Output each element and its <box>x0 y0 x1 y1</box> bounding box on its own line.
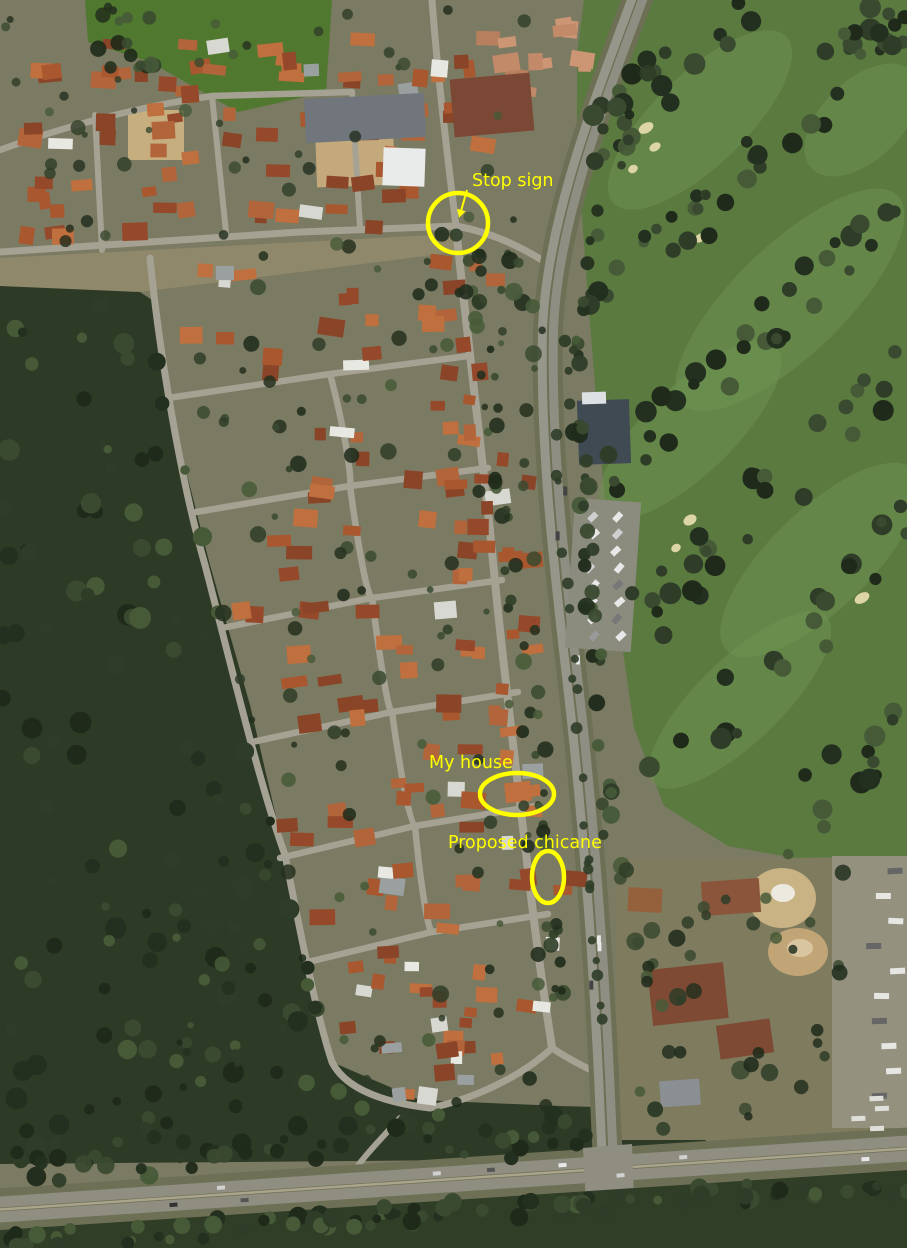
annotation-proposed-chicane: Proposed chicane <box>448 833 602 903</box>
my-house-ellipse <box>480 773 554 815</box>
stop-sign-label: Stop sign <box>472 171 554 191</box>
satellite-map: Stop sign My house Proposed chicane <box>0 0 907 1248</box>
my-house-label: My house <box>429 753 513 773</box>
annotation-stop-sign: Stop sign <box>428 171 554 253</box>
annotation-layer: Stop sign My house Proposed chicane <box>0 0 907 1248</box>
proposed-chicane-ellipse <box>532 851 564 903</box>
proposed-chicane-label: Proposed chicane <box>448 833 602 853</box>
annotation-my-house: My house <box>429 753 554 815</box>
stop-sign-arrowhead-icon <box>457 209 466 218</box>
stop-sign-circle <box>428 193 488 253</box>
